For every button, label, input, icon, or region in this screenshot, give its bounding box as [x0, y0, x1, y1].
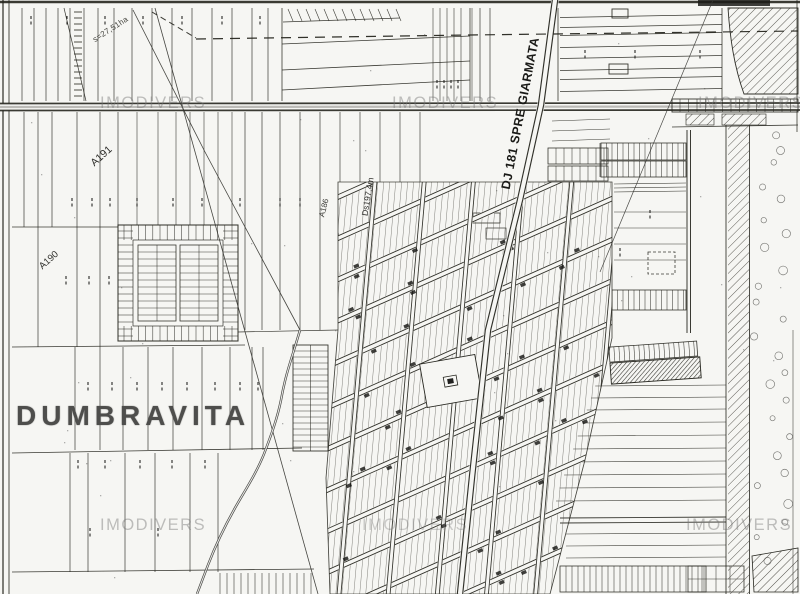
tree-symbols: [750, 132, 792, 565]
watermark-text: IMODIVERS: [100, 516, 206, 535]
watermark-text: IMODIVERS: [362, 516, 468, 535]
watermark-text: IMODIVERS: [100, 94, 206, 113]
map-linework: [0, 0, 800, 594]
settlement-label: DUMBRAVITA: [16, 402, 250, 430]
dark-hatched-block: [609, 341, 701, 384]
watermark-text: IMODIVERS: [698, 94, 800, 113]
field-parcel-lines: [0, 0, 800, 594]
watermark-text: IMODIVERS: [686, 516, 792, 535]
map-canvas: DUMBRAVITA DJ 181 SPRE GIARMATA A191 A19…: [0, 0, 800, 594]
watermark-text: IMODIVERS: [392, 94, 498, 113]
